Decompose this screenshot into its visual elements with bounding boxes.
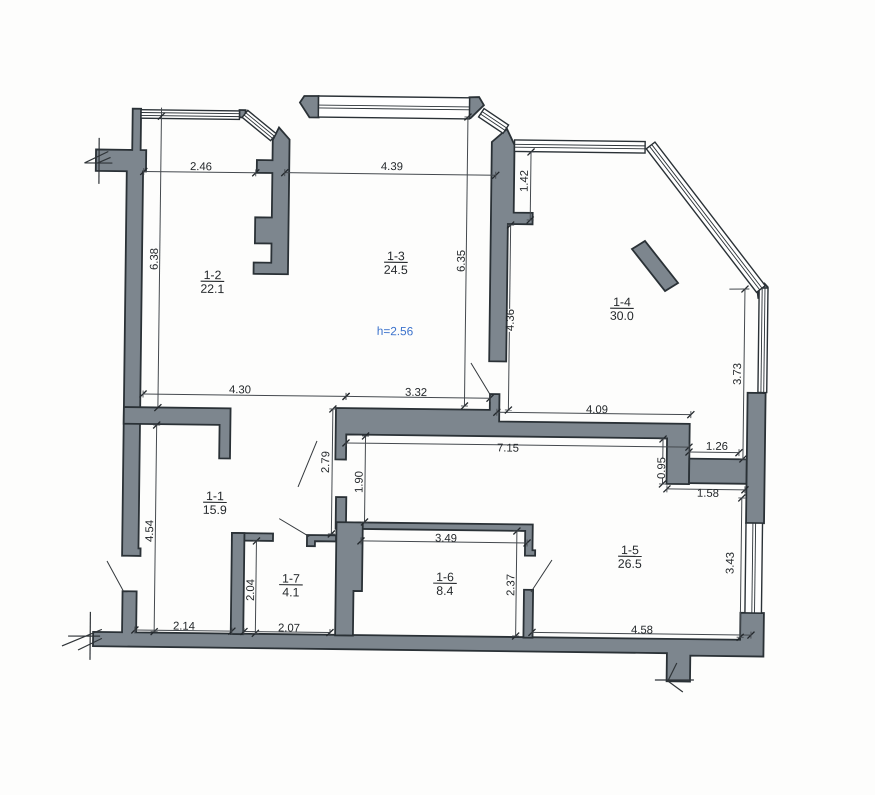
svg-text:1-6: 1-6 xyxy=(436,570,454,584)
svg-text:3.49: 3.49 xyxy=(435,533,457,545)
svg-text:3.32: 3.32 xyxy=(405,387,427,399)
svg-text:0.95: 0.95 xyxy=(656,457,668,479)
svg-text:1-4: 1-4 xyxy=(613,295,631,309)
svg-text:4.1: 4.1 xyxy=(282,585,299,599)
svg-text:22.1: 22.1 xyxy=(200,282,224,296)
svg-text:15.9: 15.9 xyxy=(203,503,227,517)
svg-text:7.15: 7.15 xyxy=(497,442,519,454)
svg-text:6.35: 6.35 xyxy=(456,250,468,272)
svg-text:24.5: 24.5 xyxy=(384,263,408,277)
svg-text:1-7: 1-7 xyxy=(282,571,300,585)
svg-text:h=2.56: h=2.56 xyxy=(377,324,414,338)
svg-text:2.37: 2.37 xyxy=(505,574,517,596)
svg-text:6.38: 6.38 xyxy=(149,248,161,270)
svg-text:8.4: 8.4 xyxy=(436,584,453,598)
svg-text:3.73: 3.73 xyxy=(732,363,744,385)
svg-text:2.14: 2.14 xyxy=(173,621,195,633)
svg-text:2.46: 2.46 xyxy=(190,161,212,173)
svg-text:4.58: 4.58 xyxy=(631,624,653,636)
svg-text:1-5: 1-5 xyxy=(621,543,639,557)
svg-text:1.26: 1.26 xyxy=(706,441,728,453)
svg-text:1-2: 1-2 xyxy=(204,268,222,282)
svg-text:4.54: 4.54 xyxy=(144,520,156,542)
svg-text:1-3: 1-3 xyxy=(387,249,405,263)
svg-text:3.43: 3.43 xyxy=(724,552,736,574)
svg-text:30.0: 30.0 xyxy=(610,309,634,323)
svg-text:4.09: 4.09 xyxy=(586,404,608,416)
svg-text:1.42: 1.42 xyxy=(519,170,531,192)
svg-text:4.30: 4.30 xyxy=(229,384,251,396)
svg-text:2.79: 2.79 xyxy=(320,451,332,473)
svg-text:1-1: 1-1 xyxy=(206,489,224,503)
svg-text:1.90: 1.90 xyxy=(353,471,365,493)
svg-text:4.36: 4.36 xyxy=(505,309,517,331)
svg-text:2.04: 2.04 xyxy=(245,579,257,601)
svg-text:2.07: 2.07 xyxy=(278,622,300,634)
svg-text:26.5: 26.5 xyxy=(618,557,642,571)
svg-text:1.58: 1.58 xyxy=(697,488,719,500)
svg-text:4.39: 4.39 xyxy=(381,161,403,173)
